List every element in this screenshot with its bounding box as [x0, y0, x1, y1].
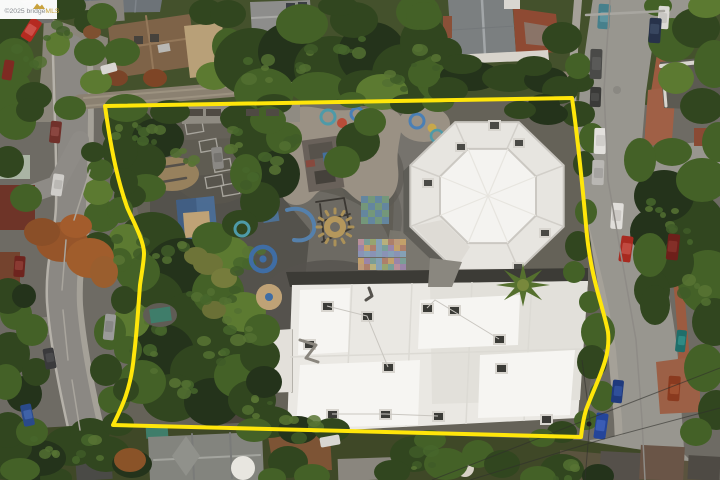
svg-text:©2025 bridgeMLS: ©2025 bridgeMLS — [5, 7, 60, 15]
